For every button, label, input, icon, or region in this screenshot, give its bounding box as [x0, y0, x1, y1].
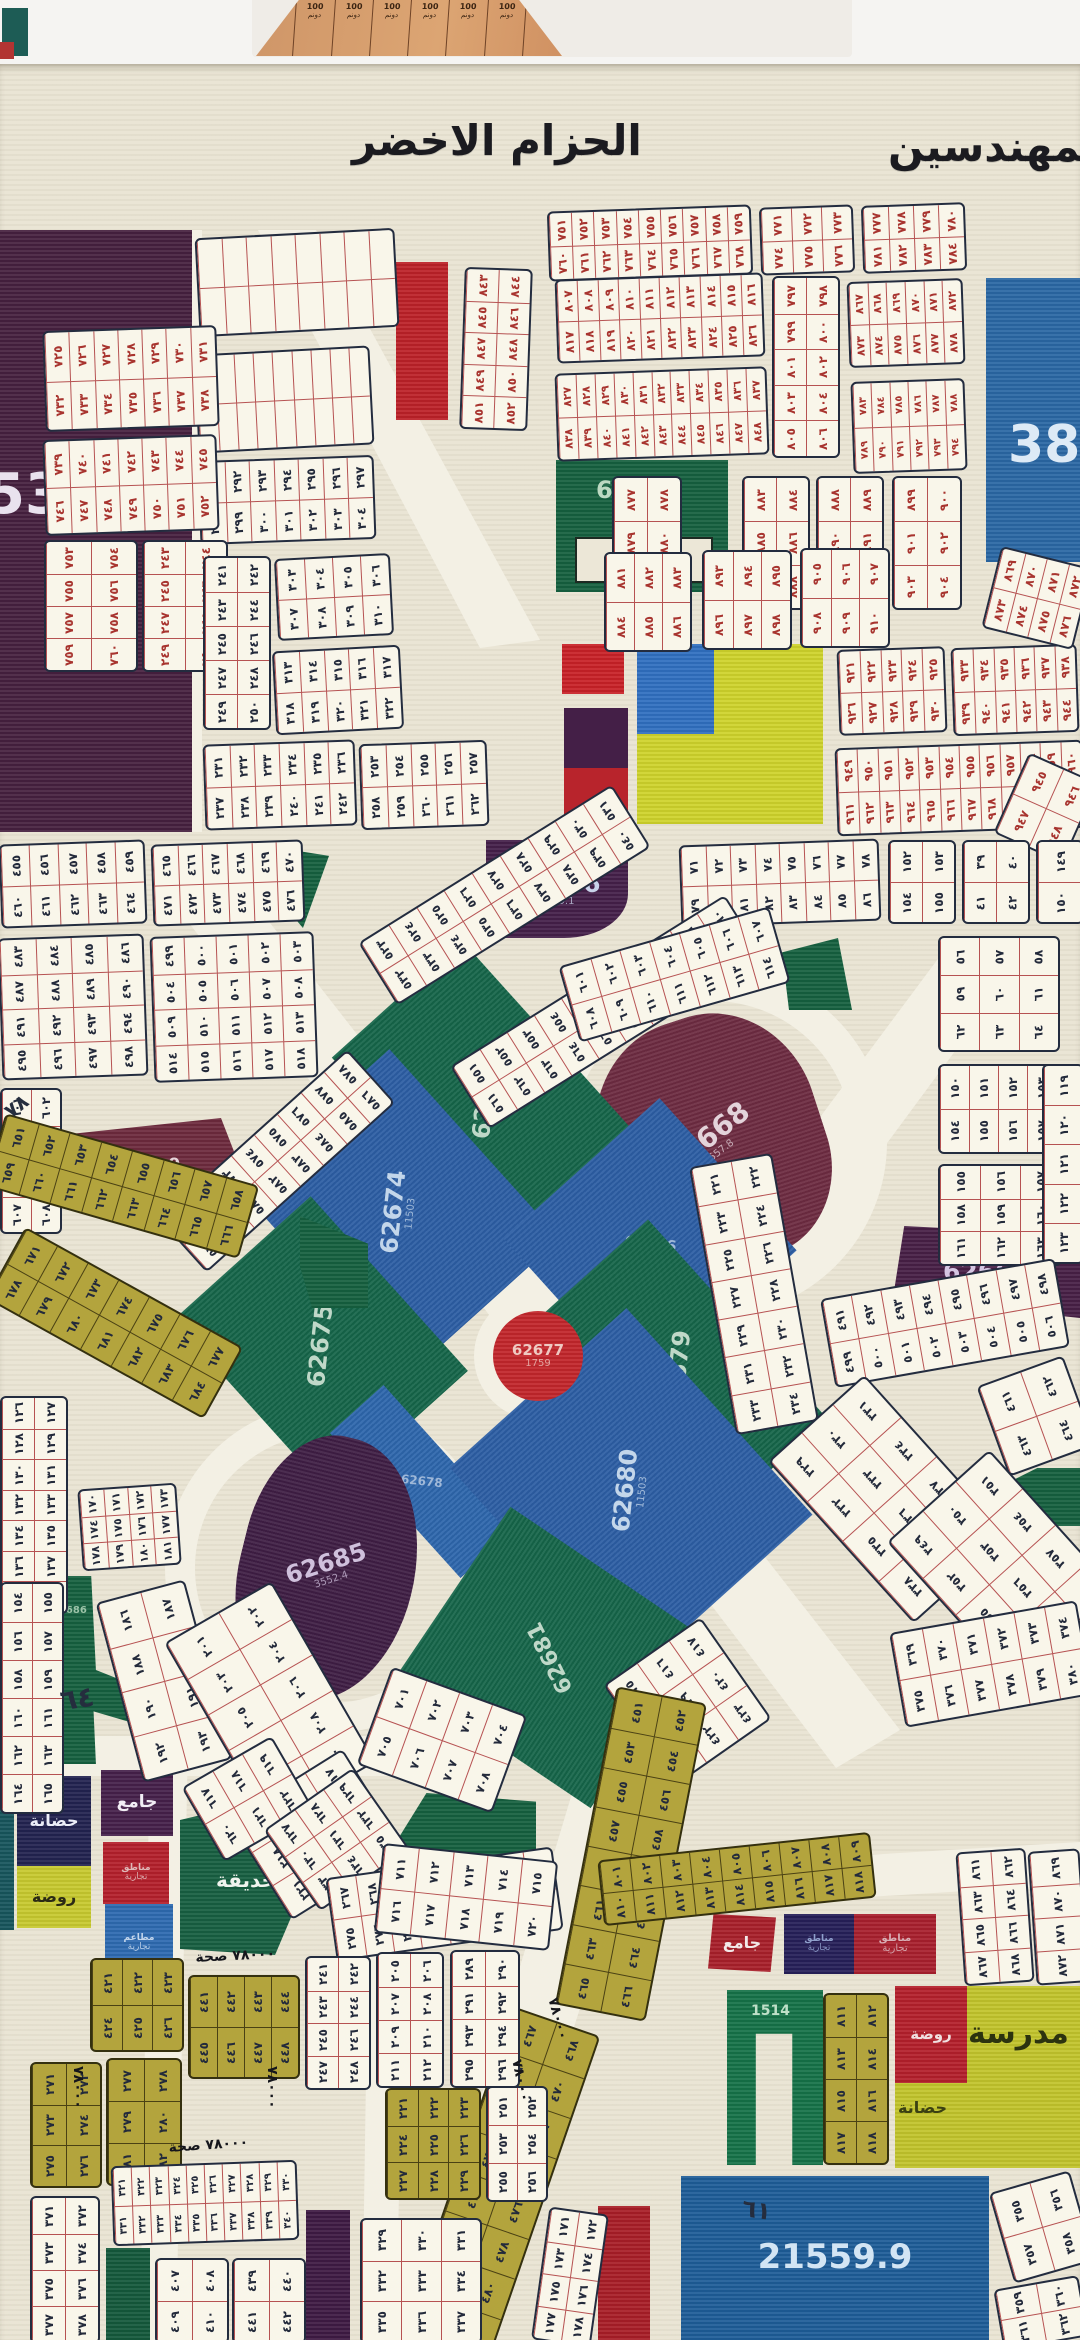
plot-cell: ٧٩١: [891, 426, 911, 471]
plot-cell: ٢٤٣: [205, 592, 237, 626]
plot-cell: ٨٠٥: [719, 1847, 752, 1881]
plot-number: ٧٤٠: [75, 452, 90, 474]
plot-cell: ٢٢٤: [387, 2126, 418, 2162]
plot-cell: [255, 400, 277, 448]
plot-grid: ٤٨٣٤٨٤٤٨٥٤٨٦٤٨٧٤٨٨٤٨٩٤٩٠٤٩١٤٩٢٤٩٣٤٩٤٤٩٥٤…: [0, 933, 148, 1080]
plot-number: ٧٨٩: [859, 441, 871, 460]
dunam-cell: 100دونم: [292, 0, 334, 56]
plot-number: ٤٠٨: [203, 2270, 217, 2292]
plot-number: ٤٦٩: [257, 851, 272, 873]
plot-cell: ٢٧٨: [144, 2060, 180, 2101]
plot-number: ٥٠٦: [227, 979, 242, 1001]
plot-number: ٤٦٥: [574, 1976, 592, 2000]
plot-cell: ٢٩١: [452, 1986, 485, 2020]
plot-cell: ٢٤٣: [144, 542, 185, 574]
plot-number: ٢٠٩: [387, 2026, 401, 2048]
plot-number: ٤٥٨: [94, 852, 109, 874]
plot-grid: ٨٦٧٨٦٨٨٦٩٨٧٠٨٧١٨٧٢٨٧٣٨٧٤٨٧٥٨٧٦٨٧٧٨٧٨: [847, 278, 966, 368]
plot-cell: ٨٦٧: [964, 1949, 999, 1984]
plot-number: ٨٦٨: [871, 293, 885, 314]
plot-number: ١٥٤: [10, 1592, 24, 1614]
plot-cell: ١٧١: [103, 1488, 129, 1516]
plot-number: ٧٧٤: [771, 246, 786, 268]
plot-number: ٨١٨: [865, 2132, 879, 2154]
plot-cell: ٧٧٣: [821, 206, 852, 239]
plot-number: ٥٠٢: [926, 1335, 944, 1359]
plot-number: ٧٣٣: [76, 394, 91, 416]
plot-number: ٧٠٦: [407, 1745, 428, 1770]
plot-number: ٨١٥: [761, 1880, 777, 1903]
plot-cell: ٩٤٤: [1056, 688, 1078, 731]
plot-number: ٧٧٩: [919, 210, 934, 232]
plot-number: ٢٣٣: [746, 1399, 764, 1423]
plot-grid: ١٥٢١٥٣١٥٤١٥٥: [888, 840, 956, 924]
plot-number: ٥٢٣: [373, 936, 397, 962]
plot-number: ١٢٢: [1056, 1193, 1070, 1215]
plot-cell: ٤٤٣: [244, 1977, 271, 2027]
plot-cell: ٢٥١: [488, 2088, 517, 2125]
plot-cell: ٩٢٣: [880, 650, 902, 692]
plot-number: ٧١٧: [422, 1904, 438, 1927]
roundabout-62677-label: 626771759: [512, 1343, 564, 1369]
plot-cell: ٩٠٥: [802, 550, 831, 598]
plot-number: ٧٣٥: [125, 392, 140, 414]
plot-grid: ٤٣٩٤٤٠٤٤١٤٤٢: [232, 2258, 306, 2340]
plot-number: ١٧٧: [541, 2312, 558, 2336]
plot-cell: ٢٢٩: [448, 2162, 479, 2198]
plot-number: ٩٥٦: [983, 755, 998, 777]
plot-grid: ٢٠٥٢٠٦٢٠٧٢٠٨٢٠٩٢١٠٢١١٢١٢: [376, 1952, 444, 2088]
plot-number: ٨٨٢: [641, 567, 655, 589]
mosque-left-label: جامع: [117, 1794, 158, 1812]
plot-number: ٨١٣: [683, 286, 698, 308]
plot-cell: [217, 402, 239, 450]
plot-cell: ٧٥٨: [91, 606, 136, 638]
plot-cell: ٨٦٨: [997, 1947, 1032, 1982]
plot-cell: ١٣٠: [2, 1459, 34, 1490]
plot-cell: ٩٦٣: [879, 790, 901, 833]
plot-number: ٥٠٨: [290, 976, 305, 998]
plot-cell: ٩٣٥: [993, 648, 1015, 691]
plot-number: ٦٠٨: [39, 1204, 53, 1226]
plot-number: ١٢٦: [11, 1402, 25, 1424]
plot-cell: ٤٨٤: [35, 938, 72, 974]
plot-cell: ٢٤٩: [205, 694, 237, 728]
plot-cell: ٩٦٦: [940, 788, 962, 831]
plot-cell: ٦٠٧: [2, 1197, 31, 1233]
plot-cell: ٤٨٩: [72, 971, 109, 1007]
plot-cell: ٧٢٩: [141, 329, 167, 378]
plot-number: ٧٨١: [870, 245, 885, 267]
plot-number: ٨٤١: [619, 426, 633, 447]
plot-grid: ٨٦٩٨٧٠٨٧١٨٧٢: [1027, 1848, 1080, 1985]
plot-number: ٤٦٢: [67, 893, 82, 915]
plot-cell: ٨١٧: [825, 2121, 856, 2163]
plot-number: ٤٩٢: [49, 1014, 64, 1036]
plot-number: ١٣٣: [43, 1494, 57, 1516]
plot-number: ٣١٧: [379, 656, 394, 679]
plot-number: ٤٧٥: [259, 890, 274, 912]
plot-cell: ٧٤: [754, 844, 780, 884]
plot-cell: ٨٠٥: [774, 420, 806, 456]
plot-number: ٨٧٦: [910, 333, 924, 354]
plot-number: ٤٩٨: [121, 1046, 136, 1068]
plot-number: ٨٥٠: [504, 370, 519, 392]
plot-cell: ٧٨٣: [914, 237, 940, 270]
plot-cell: ١٧٤: [81, 1516, 107, 1544]
plot-number: ٧٥٢: [576, 218, 591, 240]
plot-cell: [319, 233, 346, 282]
plot-number: ٧١٥: [529, 1871, 545, 1894]
plot-number: ٤٦٦: [183, 854, 198, 876]
block-area-value: 3552.4: [290, 1563, 373, 1599]
plot-number: ٤٢٣: [730, 1700, 754, 1726]
plot-number: ٨٨٥: [641, 616, 655, 638]
plot-number: ٨٤٨: [505, 339, 520, 361]
plot-number: ١٨٠: [137, 1542, 151, 1563]
plot-number: ٥٣٠: [567, 815, 591, 841]
plot-cell: ١٧٨: [83, 1542, 109, 1570]
plot-number: ٨٤٠: [600, 427, 614, 448]
plot-number: ١٥٥: [40, 1592, 54, 1614]
plot-number: ٧٦٦: [688, 247, 703, 269]
plot-number: ٢٤٧: [316, 2061, 330, 2083]
plot-cell: ٣٣٦: [401, 2301, 440, 2340]
plot-number: ٢٥٥: [496, 2171, 510, 2193]
plot-cell: ١٨١: [154, 1537, 180, 1565]
plot-number: ٩٠٨: [810, 612, 824, 634]
plot-cell: ٨٩٤: [733, 552, 762, 600]
plot-number: ١٧٣: [157, 1488, 171, 1509]
plot-cell: ٣٠٦: [360, 555, 390, 595]
plot-number: ٣٣٣: [414, 2270, 428, 2292]
plot-cell: ٢٤٤: [338, 1991, 369, 2024]
block-area-value: 11503: [634, 1450, 653, 1534]
plot-cell: ٤٦١: [30, 884, 60, 925]
plot-cell: ٨١٤: [699, 276, 721, 317]
plot-number: ٣٠٧: [286, 608, 301, 631]
plot-cell: [368, 230, 395, 279]
block-21559-9-label: 21559.9: [758, 2240, 913, 2276]
plot-cell: ٦٤: [1019, 1013, 1058, 1050]
plot-number: ٣٣٧: [228, 2212, 240, 2231]
plot-cell: ١٥٩: [32, 1660, 62, 1698]
plot-number: ٧٤٦: [52, 500, 67, 522]
plot-number: ٤٦٨: [560, 2038, 580, 2063]
plot-cell: [234, 354, 256, 402]
plot-cell: ٢٩٥: [298, 459, 324, 500]
plot-cell: ٢٢٧: [387, 2162, 418, 2198]
plot-cell: [274, 399, 296, 447]
plot-cell: ٨٦١: [958, 1852, 993, 1887]
plot-number: ٨٧٠: [1050, 1890, 1065, 1913]
plot-cell: ٨٣: [780, 882, 806, 922]
plot-cell: ١٥٥: [32, 1584, 62, 1622]
plot-cell: ٧٩٤: [946, 424, 966, 469]
plot-cell: ٨١٨: [856, 2121, 887, 2163]
plot-number: ٧٧٢: [800, 213, 815, 235]
plot-cell: ٤٤٥: [190, 2027, 217, 2077]
plot-cell: ٩٢٤: [901, 649, 923, 691]
plot-number: ٤٤٠: [280, 2270, 294, 2292]
plot-number: ٧٧: [834, 854, 849, 869]
plot-cell: ٨١٦: [856, 2079, 887, 2121]
plot-cell: ٨٤١: [615, 415, 635, 458]
plot-cell: ١٢١: [1044, 1144, 1080, 1183]
plot-number: ٧٨٦: [912, 394, 924, 413]
plot-number: ١٥٢: [1006, 1077, 1020, 1099]
plot-cell: ٧٢: [705, 846, 731, 886]
plot-number: ٨١٨: [582, 330, 597, 352]
plot-number: ٧٣٩: [50, 453, 65, 475]
plot-cell: ٣٣٨: [241, 2201, 261, 2240]
plot-number: ٤٨٧: [12, 981, 27, 1003]
plot-number: ٤٦٧: [208, 853, 223, 875]
plot-number: ٣٢٢: [135, 2177, 147, 2196]
cadastral-map-photo: 210دونم100دونم100دونم100دونم100دونم100دو…: [0, 0, 1080, 2340]
plot-number: ٥٣١: [595, 797, 619, 823]
plot-cell: ٤٤٢: [217, 1977, 244, 2027]
plot-number: ٩٥٢: [902, 758, 917, 780]
plot-number: ٥٥٤: [546, 1009, 570, 1035]
plot-number: ٦١٧: [198, 1785, 221, 1811]
plot-cell: ٧٦٠: [550, 246, 573, 280]
plot-grid: ٨٤٣٨٤٤٨٤٥٨٤٦٨٤٧٨٤٨٨٤٩٨٥٠٨٥١٨٥٢: [459, 267, 533, 431]
plot-number: ٤٥٣: [620, 1740, 638, 1764]
plot-cell: ٢٩٥: [452, 2053, 485, 2087]
plot-cell: ٢٣٣: [254, 744, 280, 786]
plot-cell: ٩٣٣: [953, 649, 975, 692]
road-label: ٧٨٠٠٠: [264, 2066, 280, 2109]
plot-number: ٨٢٧: [560, 386, 574, 407]
plot-cell: ٧٢٨: [117, 330, 143, 379]
plot-cell: ٧٥٣: [46, 542, 91, 574]
plot-cell: ٤١٠: [192, 2301, 227, 2340]
plot-number: ١٢٩: [43, 1433, 57, 1455]
plot-cell: ٨١٧: [558, 321, 580, 362]
plot-cell: ٣٢١: [113, 2168, 133, 2207]
plot-number: ٧٢٦: [75, 345, 90, 367]
plot-number: ٦٧٣: [82, 1276, 105, 1302]
plot-number: ٨٠٧: [787, 1846, 803, 1869]
plot-number: ٦٥٢: [40, 1134, 60, 1159]
plot-number: ٨٥: [835, 893, 850, 908]
plot-number: ٨٦: [860, 892, 875, 907]
plot-cell: ٩٣٧: [1034, 647, 1056, 690]
plot-number: ١٧١: [555, 2215, 572, 2239]
plot-number: ٢٤٨: [347, 2061, 361, 2083]
plot-number: ٨٢٨: [579, 385, 593, 406]
plot-cell: ٨٠١: [774, 349, 806, 385]
plot-cell: ٢٢١: [387, 2090, 418, 2126]
plot-number: ٨١٦: [744, 284, 759, 306]
plot-cell: ٧٥٤: [616, 210, 639, 244]
plot-number: ٢٤٦: [347, 2029, 361, 2051]
plot-number: ٢٣٢: [235, 755, 250, 777]
plot-number: ١٥٥: [977, 1120, 991, 1142]
plot-cell: ٢٥٥: [410, 744, 436, 786]
plot-cell: ٥٠٩: [154, 1009, 187, 1046]
plot-cell: ٦٢: [940, 1013, 979, 1050]
plot-number: ٧٤٨: [101, 498, 116, 520]
plot-number: ٨٨٤: [785, 489, 799, 511]
plot-number: ٤٢٠: [708, 1667, 732, 1693]
plot-cell: ٤٦٩: [251, 842, 277, 882]
plot-number: ٨٦٨: [1008, 1953, 1023, 1976]
plot-cell: ٢٢٨: [418, 2162, 449, 2198]
plot-number: ٦٠٧: [749, 918, 769, 943]
plot-number: ١٧٢: [133, 1490, 147, 1511]
plot-number: ٣٥٦: [1010, 1575, 1035, 1601]
plot-grid: ١٥٤١٥٥١٥٦١٥٧١٥٨١٥٩١٦٠١٦١١٦٢١٦٣١٦٤١٦٥: [0, 1582, 64, 1814]
plot-number: ٣٧٥: [910, 1688, 928, 1712]
plot-cell: ١٥٩: [980, 1199, 1020, 1232]
plot-cell: ٩٢٦: [840, 692, 862, 734]
plot-cell: ٨٦٩: [886, 282, 906, 324]
plot-number: ٨١١: [642, 287, 657, 309]
plot-grid: [194, 345, 375, 453]
plot-number: ٢٢٦: [759, 1241, 777, 1265]
plot-number: ٤٥٤: [663, 1748, 681, 1772]
dunam-cell: 100دونم: [484, 0, 526, 56]
plot-cell: ١٧٠: [79, 1490, 105, 1518]
plot-cell: ٤٦٠: [2, 885, 32, 926]
plot-number: ١٢١: [1056, 1153, 1070, 1175]
plot-number: ٨١١: [642, 1893, 658, 1916]
plot-cell: ٤٧٤: [228, 882, 254, 922]
plot-cell: ٨٧١: [923, 281, 943, 323]
plot-cell: [348, 348, 370, 396]
plot-cell: ٨٧٤: [869, 324, 889, 366]
plot-number: ٨٢٠: [623, 328, 638, 350]
plot-cell: ٢٣٥: [303, 742, 329, 784]
plot-cell: ٨٩٧: [733, 600, 762, 648]
dunam-cell: 100دونم: [445, 0, 487, 56]
nursery-right-label: حضانة: [898, 2098, 947, 2117]
plot-number: ٩٢٨: [886, 701, 901, 723]
plot-cell: ٨٣٦: [727, 369, 747, 412]
plot-number: ٤٩١: [832, 1307, 850, 1331]
plot-number: ٧٦٨: [733, 246, 748, 268]
plot-cell: ١١٩: [1044, 1066, 1080, 1105]
plot-number: ٧٩٢: [914, 439, 926, 458]
plot-number: ١٥٧: [40, 1631, 54, 1653]
plot-number: ٧٧٣: [830, 212, 845, 234]
plot-number: ١٣٠: [11, 1464, 25, 1486]
plot-cell: ٤٤١: [190, 1977, 217, 2027]
plot-number: ٣٥٢: [944, 1569, 969, 1595]
plot-cell: ٧٥٥: [638, 210, 661, 244]
plot-number: ٨١: [737, 897, 752, 912]
plot-number: ٦٧٥: [144, 1310, 167, 1336]
plot-number: ٧١٣: [461, 1864, 477, 1887]
plot-number: ٧٤٣: [148, 450, 163, 472]
plot-number: ٢٤٧: [158, 612, 172, 634]
plot-cell: ٩٠٠: [927, 478, 960, 521]
plot-cell: ١٢٩: [34, 1429, 66, 1460]
plot-number: ٥٦٣: [537, 1056, 561, 1082]
plot-number: ٢٣٥: [309, 752, 324, 774]
plot-cell: ٥١٤: [155, 1044, 188, 1081]
plot-number: ٨٧١: [1044, 569, 1063, 594]
plot-number: ٨٦٢: [1001, 1856, 1016, 1879]
plot-cell: ٧٥٢: [192, 482, 218, 529]
plot-cell: ٧١٦: [376, 1888, 415, 1934]
plot-cell: ٢٥٣: [361, 745, 387, 787]
plot-number: ٢٩٠: [495, 1958, 509, 1980]
dunam-cell: 100دونم: [331, 0, 373, 56]
plot-number: ٣١٩: [307, 700, 322, 723]
plot-number: ٢٢٨: [765, 1279, 783, 1303]
plot-number: ٩٣٤: [977, 659, 992, 681]
plot-number: ٤٥٨: [648, 1827, 666, 1851]
plot-number: ٨٠٩: [847, 1839, 863, 1862]
plot-grid: ٧٧٧٧٧٨٧٧٩٧٨٠٧٨١٧٨٢٧٨٣٧٨٤: [861, 202, 967, 274]
plot-cell: ٧٤٠: [69, 440, 95, 487]
plot-cell: ٨٨٣: [662, 554, 690, 602]
plot-number: ٢٠٨: [306, 1710, 329, 1736]
plot-number: ٢٠٦: [419, 1960, 433, 1982]
plot-cell: ٢٩٣: [249, 460, 275, 501]
plot-number: ٥٠٢: [257, 941, 272, 963]
plot-number: ١٧٦: [135, 1516, 149, 1537]
plot-number: ٩٠١: [904, 532, 918, 554]
plot-cell: ٧٦: [803, 842, 829, 882]
plot-number: ٦١٩: [255, 1751, 278, 1777]
plot-number: ٦٨١: [94, 1328, 117, 1354]
plot-cell: ٨٠٣: [774, 385, 806, 421]
plot-number: ٥٨: [1032, 949, 1046, 964]
plot-number: ٨١٠: [622, 288, 637, 310]
plot-number: ٧٤٢: [123, 451, 138, 473]
mosque-left: جامع: [101, 1770, 173, 1836]
plot-cell: ٢٣١: [205, 746, 231, 788]
plot-number: ١٥١: [977, 1077, 991, 1099]
plot-number: ٥٧٨: [335, 1062, 360, 1088]
plot-number: ٣٣٩: [264, 2211, 276, 2230]
plot-cell: ٥٠٦: [1031, 1303, 1067, 1350]
plot-number: ٣٣٢: [828, 1494, 853, 1520]
plot-number: ٩٤٤: [1060, 698, 1075, 720]
plot-number: ٧٥٨: [709, 213, 724, 235]
plot-number: ٦٠٧: [10, 1204, 24, 1226]
plot-cell: ٥٠٦: [217, 971, 250, 1008]
plot-cell: ٢٥٠: [237, 694, 269, 728]
plot-number: ٨٢٤: [705, 325, 720, 347]
plot-cell: ٨٢٤: [701, 316, 723, 357]
plot-number: ٨٠٤: [698, 1855, 714, 1878]
plot-number: ٤٧٦: [505, 2199, 525, 2224]
plot-number: ٩٥٤: [942, 756, 957, 778]
plot-cell: ٨٠٩: [838, 1834, 871, 1868]
block-38-label: 38: [1008, 418, 1080, 473]
plot-number: ٣٣٠: [823, 1426, 848, 1452]
plot-number: ٦٥٦: [165, 1170, 185, 1195]
plot-cell: ٨٨٦: [662, 602, 690, 650]
plot-cell: ٨١٥: [825, 2079, 856, 2121]
plot-cell: ٧٦٨: [728, 240, 751, 274]
plot-number: ٣٧٥: [42, 2278, 56, 2300]
plot-number: ٩٤٩: [841, 760, 856, 782]
plot-number: ٧١٢: [426, 1860, 442, 1883]
plot-cell: ٤٥٦: [29, 845, 59, 886]
plot-number: ٨٠١: [783, 356, 797, 378]
plot-number: ٣٠٢: [305, 508, 320, 530]
plot-number: ٦٦٢: [92, 1187, 112, 1212]
plot-number: ٩٠٧: [867, 563, 881, 585]
plot-number: ٤٥٦: [655, 1788, 673, 1812]
plot-number: ٨٣٢: [655, 383, 669, 404]
